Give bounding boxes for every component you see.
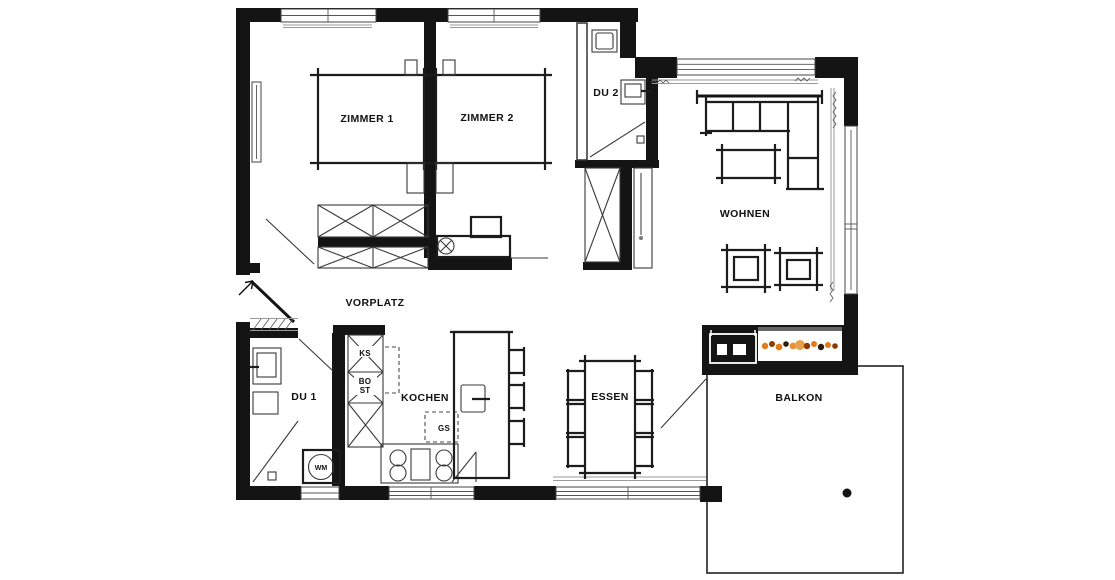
sliding-panel — [634, 168, 652, 268]
window-bottom-kitchen — [389, 487, 474, 499]
fire-box — [758, 327, 842, 361]
label-du1: DU 1 — [291, 391, 317, 403]
nightstand — [407, 163, 424, 193]
label-balkon: BALKON — [775, 392, 822, 404]
zimmer2-furniture — [429, 60, 552, 257]
closet-row-1 — [318, 205, 428, 237]
dining-chairs-right — [635, 369, 654, 468]
closet-row-2 — [318, 247, 428, 268]
entrance-arrow-icon — [239, 281, 253, 295]
shower — [590, 122, 645, 157]
nightstand — [443, 60, 455, 75]
window-top-2 — [448, 9, 540, 28]
window-top-1 — [281, 9, 376, 28]
corner-sofa — [697, 90, 824, 190]
desk-chair — [471, 217, 501, 237]
floor-plan-page: ZIMMER 1 ZIMMER 2 DU 2 WOHNEN VORPLATZ D… — [0, 0, 1115, 580]
nightstand — [436, 163, 453, 193]
stool-2 — [774, 247, 823, 291]
window-wohnen-top — [652, 59, 818, 84]
lamp-symbol-icon — [438, 238, 454, 254]
kitchen-fixtures — [348, 332, 525, 483]
kitchen-island — [450, 332, 513, 478]
stove-unit — [710, 330, 756, 363]
entrance-door-leaf — [251, 281, 294, 322]
stool-1 — [721, 244, 771, 293]
sliding-door-bottom — [553, 477, 706, 499]
label-essen: ESSEN — [591, 391, 629, 403]
balcony-door-leaf — [661, 379, 706, 428]
label-zimmer1: ZIMMER 1 — [340, 113, 393, 125]
counter-cooktop — [381, 444, 458, 483]
label-oven: BO — [359, 377, 371, 386]
wohnen-furniture — [651, 78, 836, 302]
label-wohnen: WOHNEN — [720, 208, 770, 220]
bar-stools — [508, 347, 525, 447]
toilet — [592, 30, 617, 52]
nightstand — [405, 60, 417, 75]
window-bottom-du1 — [301, 487, 339, 499]
shower — [253, 421, 298, 482]
label-vorplatz: VORPLATZ — [345, 297, 404, 309]
label-du2: DU 2 — [593, 87, 619, 99]
washbasin — [249, 348, 281, 384]
label-steamer: ST — [360, 386, 371, 395]
dining-table — [579, 355, 641, 479]
label-kochen: KOCHEN — [401, 392, 449, 404]
label-dishwasher: GS — [438, 424, 450, 433]
coffee-table — [716, 144, 781, 184]
du1-door-leaf — [299, 339, 333, 371]
dining-chairs-left — [566, 369, 585, 468]
label-zimmer2: ZIMMER 2 — [460, 112, 513, 124]
label-fridge: KS — [359, 349, 371, 358]
toilet-box — [253, 392, 278, 414]
window-left — [252, 82, 261, 162]
floor-plan-drawing: ZIMMER 1 ZIMMER 2 DU 2 WOHNEN VORPLATZ D… — [0, 0, 1115, 580]
hall-wardrobe — [585, 168, 652, 268]
kochen-dash-connector — [385, 347, 399, 393]
essen-furniture — [566, 355, 654, 479]
du1-fixtures — [249, 348, 340, 483]
label-washing-machine: WM — [315, 465, 328, 472]
balcony-drain-dot — [843, 489, 852, 498]
zimmer1-door-leaf — [266, 219, 314, 264]
du2-partition — [577, 23, 587, 160]
zimmer1-furniture — [310, 60, 432, 268]
